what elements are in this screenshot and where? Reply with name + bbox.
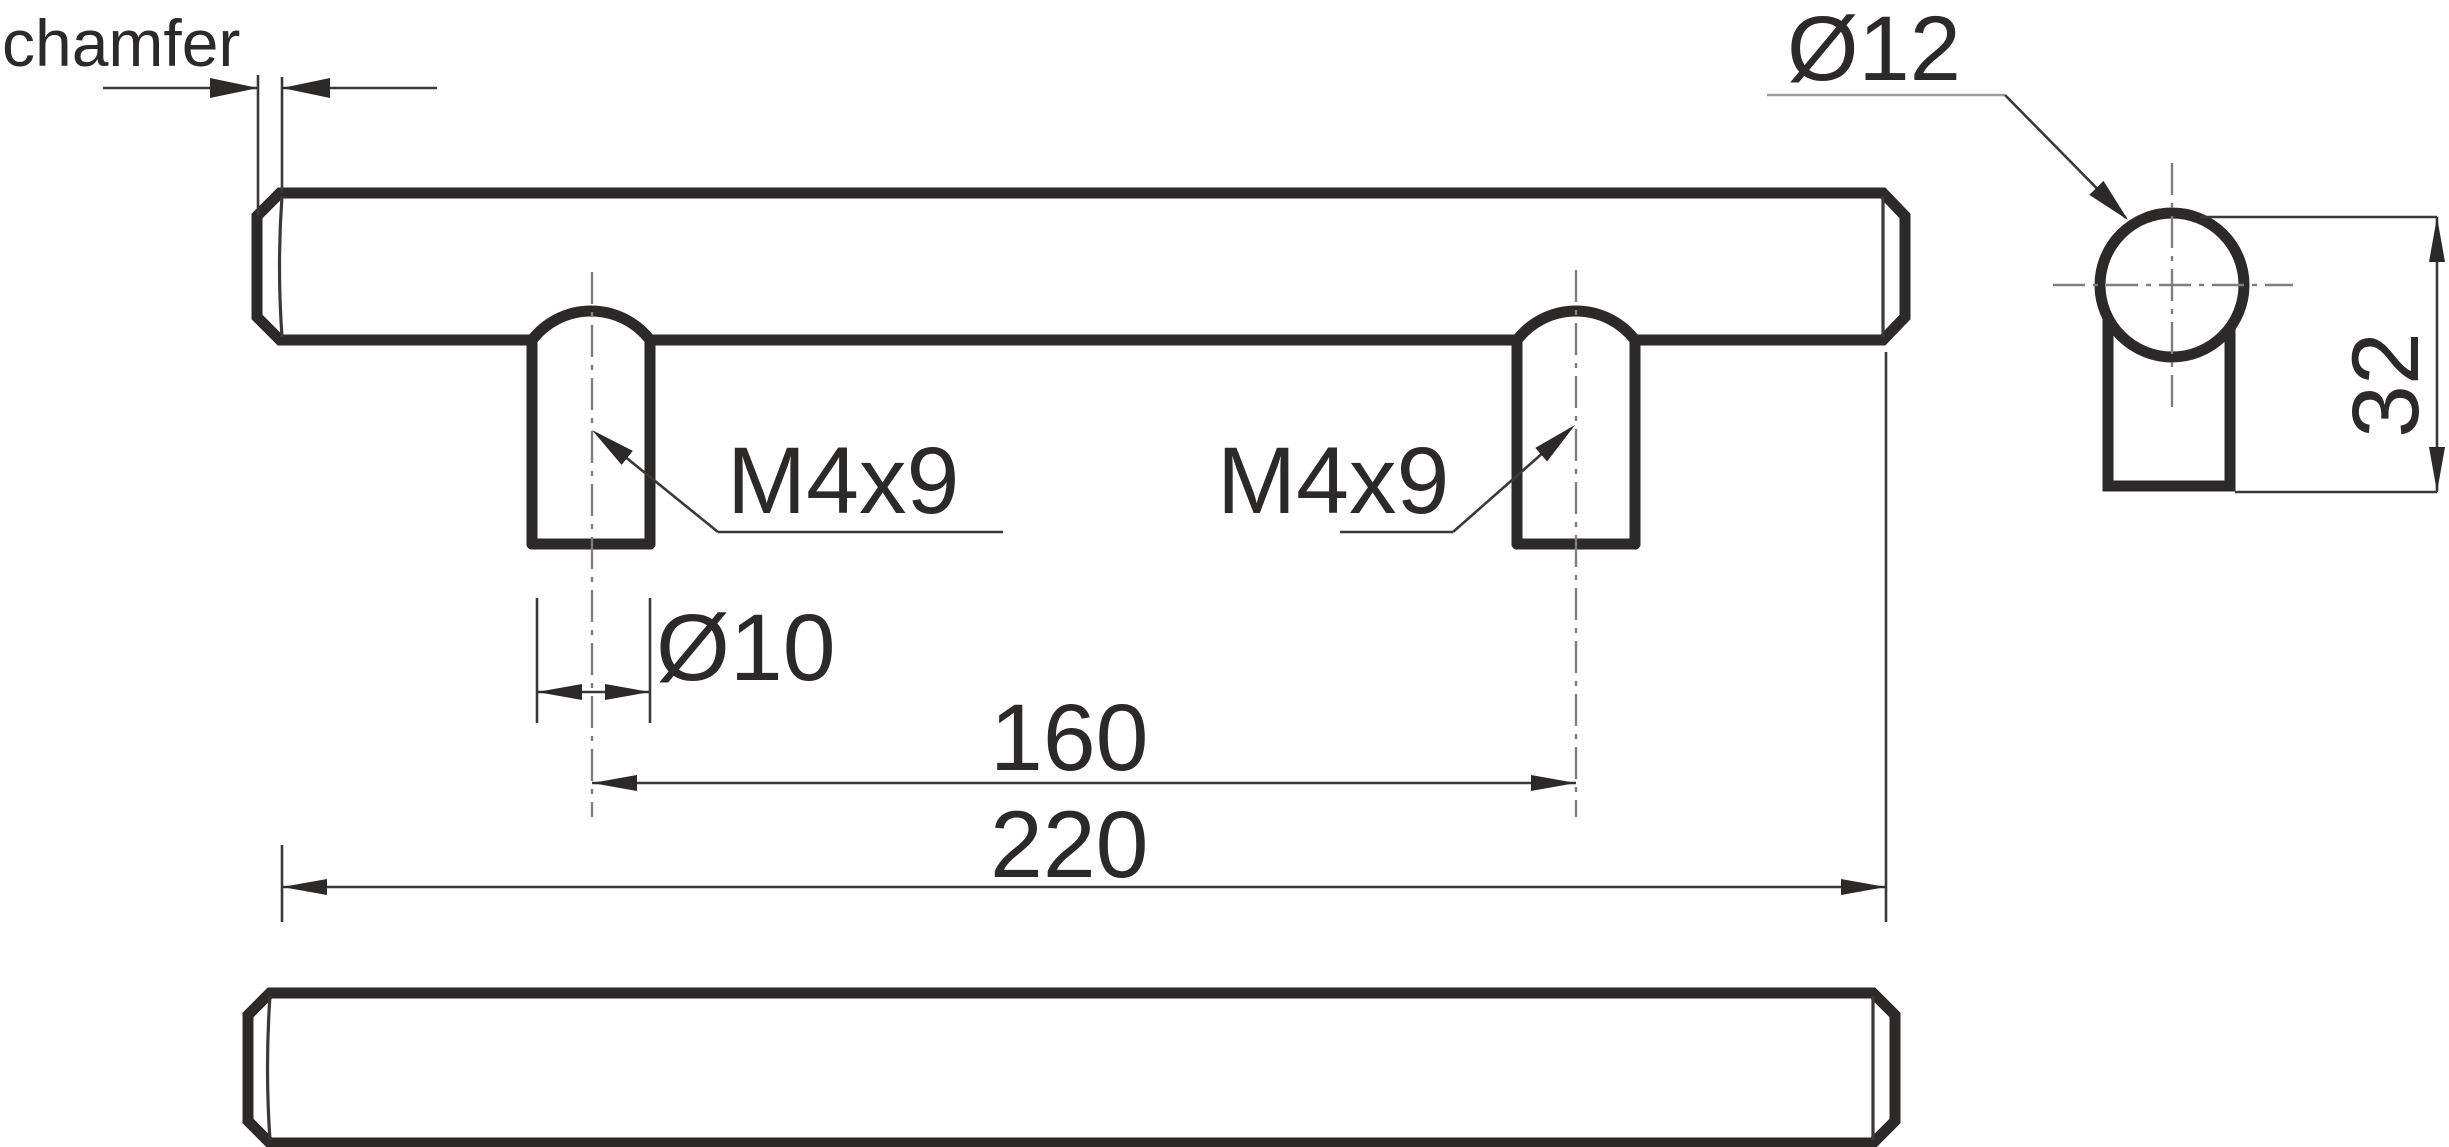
front-view-bar-outline xyxy=(257,193,1905,340)
dim220-arrow-right xyxy=(1841,879,1886,895)
chamfer-label: chamfer xyxy=(2,6,240,80)
m4x9-right-label: M4x9 xyxy=(1217,428,1449,534)
dim220-arrow-left xyxy=(282,879,327,895)
dim32-arrow-bottom xyxy=(2429,447,2445,492)
bottom-view-bar-outline xyxy=(248,993,1895,1143)
chamfer-arrow-left xyxy=(210,78,258,98)
post-diameter-dimension: Ø10 xyxy=(537,595,836,723)
bar-diameter-callout: Ø12 xyxy=(1767,0,2128,220)
overall-length-dimension: 220 xyxy=(282,352,1886,922)
dim32-arrow-top xyxy=(2429,217,2445,262)
dim220-label: 220 xyxy=(990,792,1149,898)
m4x9-left-label: M4x9 xyxy=(727,428,959,534)
handle-technical-drawing: chamfer M4x9 M4x9 Ø10 160 220 xyxy=(0,0,2449,1147)
chamfer-dimension: chamfer xyxy=(2,6,437,215)
dim32-label: 32 xyxy=(2333,332,2439,438)
dim160-label: 160 xyxy=(990,685,1149,791)
bottom-view xyxy=(248,993,1895,1143)
dia12-label: Ø12 xyxy=(1787,0,1961,100)
dim160-arrow-left xyxy=(592,775,637,791)
side-view xyxy=(2053,163,2293,486)
dia10-arrow-right xyxy=(605,684,650,700)
dia10-arrow-left xyxy=(537,684,582,700)
dim160-arrow-right xyxy=(1531,775,1576,791)
dia10-label: Ø10 xyxy=(656,595,836,701)
technical-drawing-page: chamfer M4x9 M4x9 Ø10 160 220 xyxy=(0,0,2449,1147)
chamfer-arrow-right xyxy=(282,78,330,98)
